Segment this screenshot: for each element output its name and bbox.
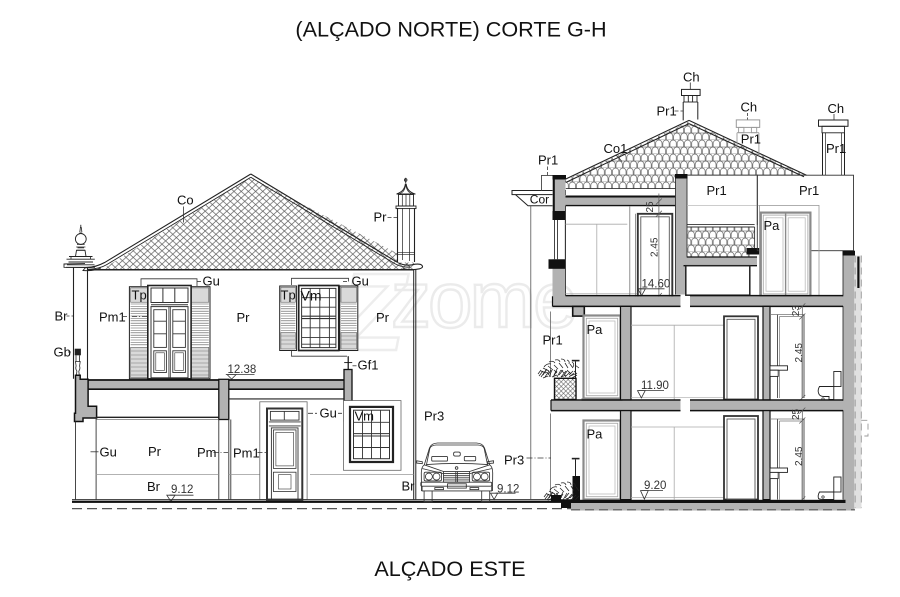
svg-text:Pm1: Pm1 (99, 310, 126, 325)
svg-text:Pa: Pa (587, 322, 604, 337)
svg-text:Pr1: Pr1 (543, 333, 563, 348)
svg-text:9.12: 9.12 (171, 484, 193, 496)
svg-text:Tp: Tp (281, 288, 296, 303)
svg-text:Pr1: Pr1 (826, 141, 846, 156)
svg-text:Gu: Gu (203, 274, 220, 289)
svg-text:Cor: Cor (530, 193, 549, 207)
svg-text:Tp: Tp (132, 288, 147, 303)
svg-text:Pm1: Pm1 (233, 446, 260, 461)
svg-text:Pr3: Pr3 (504, 453, 524, 468)
svg-text:Pr: Pr (148, 444, 162, 459)
svg-text:2.45: 2.45 (794, 446, 805, 466)
svg-text:Pr1: Pr1 (538, 153, 558, 168)
svg-text:Co: Co (177, 193, 194, 208)
svg-text:23: 23 (791, 305, 802, 317)
svg-text:25: 25 (645, 201, 656, 213)
svg-text:Pr1: Pr1 (707, 183, 727, 198)
svg-text:Br: Br (402, 479, 416, 494)
svg-text:Pr: Pr (376, 310, 390, 325)
svg-text:Pr3: Pr3 (424, 409, 444, 424)
svg-text:(ALÇADO NORTE) CORTE G-H: (ALÇADO NORTE) CORTE G-H (295, 17, 606, 42)
svg-text:Ch: Ch (741, 100, 758, 115)
svg-text:Pr: Pr (237, 310, 251, 325)
svg-text:Co1: Co1 (604, 141, 628, 156)
svg-text:2.45: 2.45 (649, 237, 660, 257)
svg-text:Pr: Pr (374, 210, 388, 225)
svg-text:12.38: 12.38 (228, 364, 257, 376)
svg-text:zome: zome (391, 255, 575, 344)
svg-text:Gf1: Gf1 (358, 358, 379, 373)
svg-text:Vm: Vm (301, 288, 322, 304)
svg-text:Ch: Ch (828, 101, 845, 116)
svg-text:Pa: Pa (587, 427, 604, 442)
svg-text:25: 25 (791, 408, 802, 420)
svg-text:Pr1: Pr1 (799, 183, 819, 198)
svg-text:Ch: Ch (683, 69, 700, 84)
svg-text:Pr1: Pr1 (657, 103, 677, 118)
svg-text:2.45: 2.45 (794, 343, 805, 363)
svg-text:Br: Br (147, 479, 161, 494)
svg-text:Br: Br (55, 309, 69, 324)
svg-text:Vm: Vm (355, 409, 375, 424)
svg-text:Gu: Gu (100, 445, 117, 460)
svg-text:Pa: Pa (764, 218, 781, 233)
svg-text:ALÇADO ESTE: ALÇADO ESTE (374, 556, 525, 581)
svg-text:Gu: Gu (320, 405, 337, 420)
svg-text:Gu: Gu (352, 274, 369, 289)
svg-text:Pr1: Pr1 (741, 131, 761, 146)
